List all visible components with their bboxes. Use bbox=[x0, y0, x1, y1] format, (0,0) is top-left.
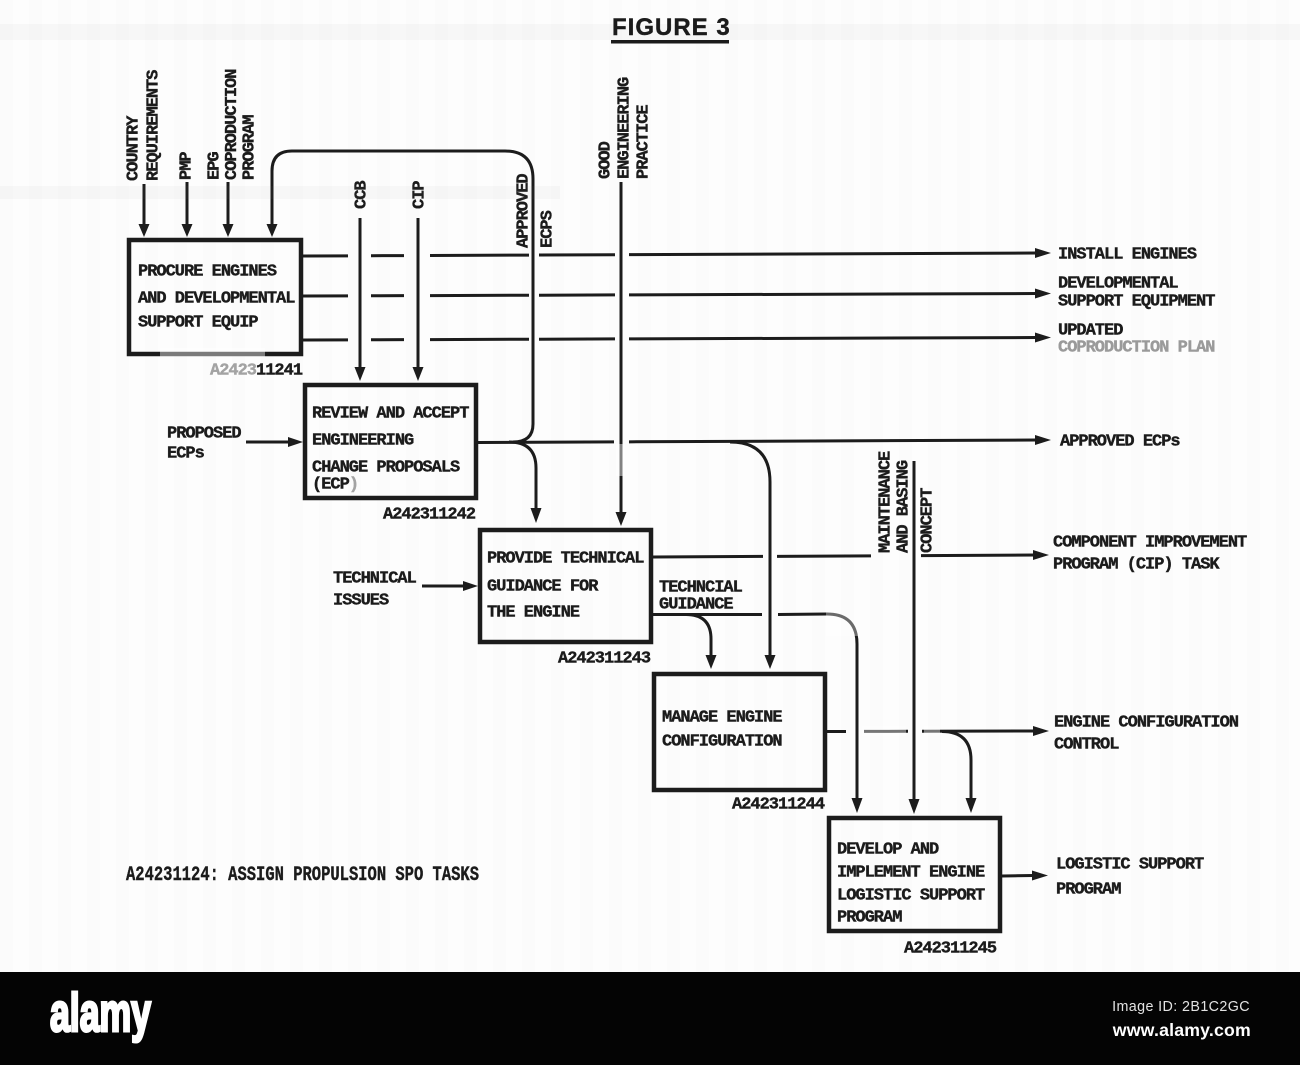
svg-text:ECPs: ECPs bbox=[167, 445, 205, 464]
svg-text:A242311242: A242311242 bbox=[383, 506, 476, 525]
svg-text:COUNTRY: COUNTRY bbox=[125, 115, 144, 181]
svg-text:MAINTENANCE: MAINTENANCE bbox=[877, 451, 896, 553]
svg-text:FIGURE 3: FIGURE 3 bbox=[612, 14, 731, 41]
svg-text:LOGISTIC SUPPORT: LOGISTIC SUPPORT bbox=[837, 887, 985, 906]
svg-text:Image ID: 2B1C2GC: Image ID: 2B1C2GC bbox=[1112, 999, 1250, 1015]
svg-text:CONFIGURATION: CONFIGURATION bbox=[662, 733, 782, 752]
svg-text:LOGISTIC SUPPORT: LOGISTIC SUPPORT bbox=[1056, 856, 1204, 875]
svg-text:A24231124: ASSIGN PROPULSION S: A24231124: ASSIGN PROPULSION SPO TASKS bbox=[126, 864, 479, 887]
svg-text:ENGINE CONFIGURATION: ENGINE CONFIGURATION bbox=[1054, 714, 1239, 733]
svg-text:A242311241: A242311241 bbox=[210, 362, 303, 381]
svg-text:APPROVED ECPs: APPROVED ECPs bbox=[1060, 433, 1180, 452]
svg-text:APPROVED: APPROVED bbox=[515, 174, 534, 248]
svg-text:PROGRAM (CIP) TASK: PROGRAM (CIP) TASK bbox=[1053, 556, 1220, 575]
svg-text:DEVELOPMENTAL: DEVELOPMENTAL bbox=[1058, 275, 1178, 294]
svg-text:REVIEW AND ACCEPT: REVIEW AND ACCEPT bbox=[312, 405, 469, 424]
svg-text:GUIDANCE: GUIDANCE bbox=[659, 596, 733, 615]
svg-text:PROPOSED: PROPOSED bbox=[167, 425, 241, 444]
svg-text:PMP: PMP bbox=[178, 152, 197, 180]
svg-text:DEVELOP AND: DEVELOP AND bbox=[837, 841, 939, 860]
svg-text:ENGINEERING: ENGINEERING bbox=[312, 432, 414, 451]
svg-text:CONCEPT: CONCEPT bbox=[919, 488, 938, 553]
svg-text:PROGRAM: PROGRAM bbox=[241, 115, 260, 180]
svg-text:TECHNICAL: TECHNICAL bbox=[333, 570, 417, 589]
svg-text:PROVIDE TECHNICAL: PROVIDE TECHNICAL bbox=[487, 550, 644, 569]
svg-text:PROGRAM: PROGRAM bbox=[837, 909, 902, 928]
svg-text:COPRODUCTION: COPRODUCTION bbox=[223, 69, 242, 180]
svg-text:AND DEVELOPMENTAL: AND DEVELOPMENTAL bbox=[138, 290, 295, 309]
svg-text:alamy: alamy bbox=[50, 983, 151, 1043]
svg-text:www.alamy.com: www.alamy.com bbox=[1112, 1020, 1251, 1040]
svg-text:A242311243: A242311243 bbox=[558, 650, 651, 669]
svg-text:SUPPORT EQUIPMENT: SUPPORT EQUIPMENT bbox=[1058, 293, 1215, 312]
svg-text:PROGRAM: PROGRAM bbox=[1056, 881, 1121, 900]
svg-text:A242311244: A242311244 bbox=[732, 796, 825, 815]
svg-text:INSTALL ENGINES: INSTALL ENGINES bbox=[1058, 246, 1197, 265]
svg-text:REQUIREMENTS: REQUIREMENTS bbox=[145, 70, 164, 181]
svg-text:MANAGE ENGINE: MANAGE ENGINE bbox=[662, 709, 782, 728]
svg-text:EPG: EPG bbox=[206, 152, 225, 180]
svg-text:ENGINEERING: ENGINEERING bbox=[616, 77, 635, 179]
svg-text:PRACTICE: PRACTICE bbox=[635, 105, 654, 179]
svg-text:CONTROL: CONTROL bbox=[1054, 736, 1119, 755]
svg-text:A242311245: A242311245 bbox=[904, 940, 997, 959]
svg-text:SUPPORT EQUIP: SUPPORT EQUIP bbox=[138, 314, 258, 333]
svg-text:PROCURE ENGINES: PROCURE ENGINES bbox=[138, 263, 277, 282]
svg-text:COPRODUCTION PLAN: COPRODUCTION PLAN bbox=[1058, 339, 1215, 358]
svg-text:ECPS: ECPS bbox=[539, 210, 558, 248]
svg-text:GUIDANCE FOR: GUIDANCE FOR bbox=[487, 578, 599, 597]
svg-text:ISSUES: ISSUES bbox=[333, 592, 389, 611]
svg-text:COMPONENT IMPROVEMENT: COMPONENT IMPROVEMENT bbox=[1053, 534, 1247, 553]
svg-text:GOOD: GOOD bbox=[597, 141, 616, 179]
svg-text:THE ENGINE: THE ENGINE bbox=[487, 604, 580, 623]
svg-text:IMPLEMENT ENGINE: IMPLEMENT ENGINE bbox=[837, 864, 985, 883]
svg-text:AND BASING: AND BASING bbox=[895, 460, 914, 553]
svg-text:(ECP): (ECP) bbox=[312, 476, 358, 495]
